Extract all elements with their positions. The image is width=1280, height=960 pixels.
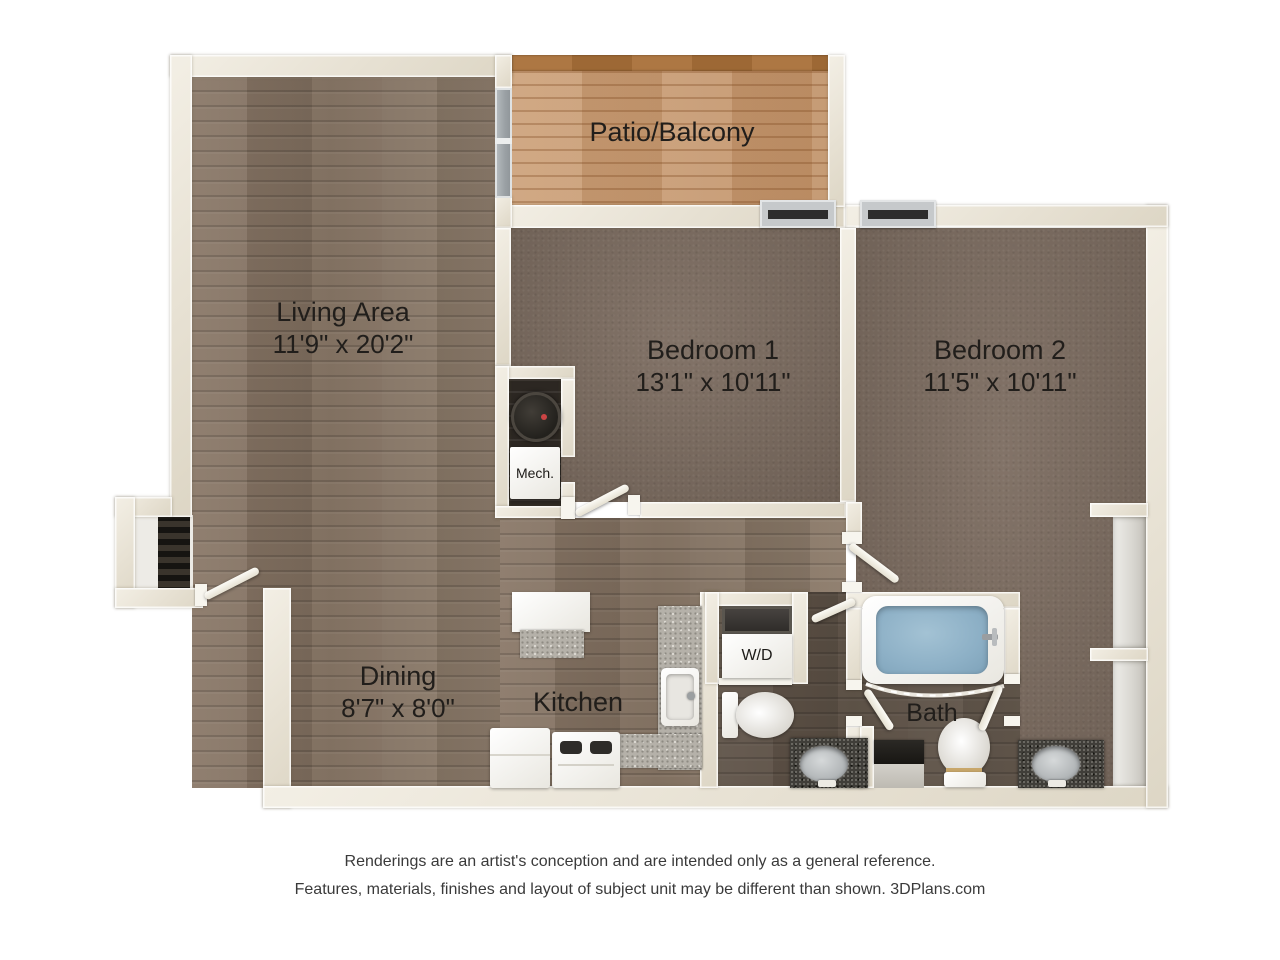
wall-top-left — [170, 55, 512, 77]
patio-wall-left-lower — [495, 196, 512, 228]
mech-label: Mech. — [516, 465, 554, 481]
stove — [552, 732, 620, 788]
linen-cabinet-top — [874, 740, 924, 764]
living-area-name: Living Area — [273, 296, 414, 329]
bedroom2-dims: 11'5" x 10'11" — [923, 367, 1076, 399]
refrigerator — [490, 728, 550, 788]
vanity-left-faucet — [818, 780, 836, 787]
wall-nook-divider-upper — [1090, 503, 1148, 517]
linen-cabinet-front — [874, 764, 924, 788]
patio-wall-left-upper — [495, 55, 512, 88]
bedroom2-window-glass — [868, 210, 928, 219]
bedroom2-name: Bedroom 2 — [923, 334, 1076, 367]
kitchen-name: Kitchen — [533, 686, 623, 719]
stove-drawer-line — [558, 764, 614, 766]
water-heater-valve — [541, 414, 547, 420]
wall-right — [1146, 205, 1168, 808]
disclaimer-line-2: Features, materials, finishes and layout… — [295, 881, 986, 899]
wall-mech-right — [561, 379, 575, 457]
washer-dryer-front: W/D — [722, 634, 792, 678]
patio-label: Patio/Balcony — [589, 116, 754, 149]
bath-door-jamb-right-lower — [1004, 716, 1020, 726]
laundry-bifold-door — [719, 678, 792, 685]
bedroom2-door-jamb-bottom — [842, 582, 862, 592]
wall-nook-divider-lower — [1090, 648, 1148, 661]
wall-mech-left — [495, 366, 509, 518]
bedroom1-door-jamb-right — [628, 495, 640, 515]
water-heater — [511, 392, 561, 442]
wall-hall-north — [640, 502, 846, 518]
wall-left — [170, 55, 192, 517]
vanity-right-faucet — [1048, 780, 1066, 787]
dining-dims: 8'7" x 8'0" — [341, 693, 455, 725]
wall-bedroom-divider — [840, 228, 856, 502]
refrigerator-door-line — [490, 754, 550, 756]
entry-closet-shelves — [158, 515, 190, 590]
dining-label: Dining 8'7" x 8'0" — [341, 660, 455, 725]
patio-rail — [512, 55, 845, 71]
bedroom1-label: Bedroom 1 13'1" x 10'11" — [635, 334, 790, 399]
toilet-1-bowl — [736, 692, 794, 738]
living-area-label: Living Area 11'9" x 20'2" — [273, 296, 414, 361]
bath-label: Bath — [906, 698, 957, 729]
bedroom2-window — [860, 200, 936, 228]
bedroom1-window-glass — [768, 210, 828, 219]
bath-name: Bath — [906, 698, 957, 729]
washer-dryer-label: W/D — [741, 647, 772, 665]
toilet-2-base — [944, 772, 986, 787]
stove-burner-right — [590, 741, 612, 754]
bedroom1-window — [760, 200, 836, 228]
kitchen-peninsula — [512, 592, 590, 632]
wall-bottom — [263, 786, 1168, 808]
mech-unit: Mech. — [510, 447, 560, 499]
bedroom2-closet-upper — [1113, 517, 1146, 648]
wall-living-bedroom1 — [495, 228, 511, 366]
bedroom1-name: Bedroom 1 — [635, 334, 790, 367]
patio-name: Patio/Balcony — [589, 116, 754, 149]
bedroom2-closet-lower — [1113, 661, 1146, 788]
sliding-door-rail — [495, 138, 512, 144]
bath-door-jamb-left-lower — [846, 716, 862, 726]
bedroom2-label: Bedroom 2 11'5" x 10'11" — [923, 334, 1076, 399]
washer-dryer-top — [722, 606, 792, 634]
dining-name: Dining — [341, 660, 455, 693]
living-area-dims: 11'9" x 20'2" — [273, 329, 414, 361]
disclaimer-line-1: Renderings are an artist's conception an… — [345, 853, 936, 871]
wall-alcove-bottom — [115, 588, 203, 608]
patio-wall-right — [828, 55, 845, 207]
wall-dining-left — [263, 588, 291, 808]
wall-laundry-right — [792, 592, 808, 684]
kitchen-counter-bottom — [620, 734, 702, 768]
vanity-left-sink — [800, 746, 848, 782]
bedroom1-dims: 13'1" x 10'11" — [635, 367, 790, 399]
bedroom1-door-jamb-left — [561, 497, 575, 519]
floor-plan-canvas: Mech. W/D Patio/Balcony Living Area 11'9… — [0, 0, 1280, 960]
kitchen-label: Kitchen — [533, 686, 623, 719]
vanity-right-sink — [1032, 746, 1080, 782]
stove-burner-left — [560, 741, 582, 754]
wall-laundry-left — [705, 592, 719, 684]
kitchen-faucet — [687, 692, 695, 700]
kitchen-peninsula-counter — [520, 630, 584, 658]
